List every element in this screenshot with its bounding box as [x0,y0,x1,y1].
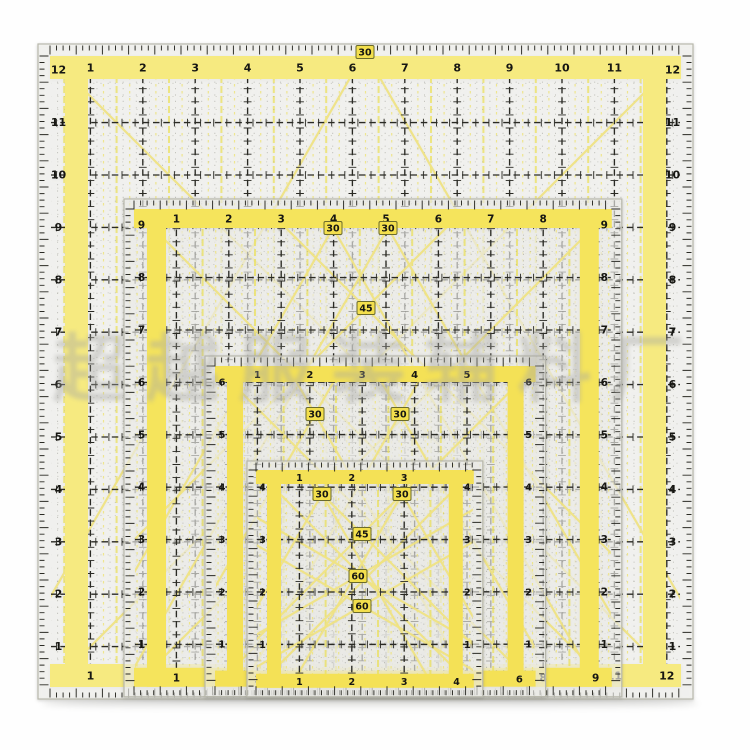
svg-text:4: 4 [55,483,63,496]
svg-text:11: 11 [607,62,622,75]
svg-text:1: 1 [87,62,95,75]
svg-text:6: 6 [219,378,226,389]
svg-text:3: 3 [138,534,145,546]
svg-text:3: 3 [55,535,63,548]
svg-text:1: 1 [464,640,471,651]
svg-text:3: 3 [259,535,266,546]
svg-text:7: 7 [138,325,145,337]
svg-text:30: 30 [395,490,409,501]
svg-text:4: 4 [219,483,226,494]
svg-text:45: 45 [355,530,368,541]
svg-text:45: 45 [359,304,372,315]
svg-text:4: 4 [453,677,460,688]
svg-text:4: 4 [669,483,677,496]
svg-text:8: 8 [540,214,547,226]
svg-text:30: 30 [393,410,407,421]
svg-text:7: 7 [601,325,608,337]
svg-text:3: 3 [525,535,532,546]
svg-text:4: 4 [244,62,252,75]
svg-text:1: 1 [254,370,261,381]
svg-text:8: 8 [669,273,677,286]
svg-text:2: 2 [225,214,232,226]
svg-text:1: 1 [525,640,532,651]
svg-text:9: 9 [592,672,599,684]
svg-text:6: 6 [435,214,442,226]
svg-text:3: 3 [278,214,285,226]
svg-text:12: 12 [659,670,674,683]
svg-text:2: 2 [259,588,266,599]
svg-text:5: 5 [219,430,226,441]
svg-text:5: 5 [55,431,63,444]
svg-text:5: 5 [525,430,532,441]
svg-text:30: 30 [358,48,372,59]
svg-text:10: 10 [554,62,570,75]
svg-text:7: 7 [55,326,63,339]
svg-text:30: 30 [315,490,329,501]
svg-text:4: 4 [138,482,145,494]
svg-text:12: 12 [665,64,680,77]
svg-text:6: 6 [516,675,523,686]
svg-text:1: 1 [601,639,608,651]
svg-text:11: 11 [665,116,680,129]
svg-text:3: 3 [219,535,226,546]
svg-text:2: 2 [464,588,471,599]
svg-text:1: 1 [138,639,145,651]
svg-text:4: 4 [259,483,266,494]
svg-text:9: 9 [55,221,63,234]
svg-text:3: 3 [601,534,608,546]
svg-text:2: 2 [348,473,355,484]
svg-text:3: 3 [401,473,408,484]
svg-text:8: 8 [138,272,145,284]
svg-text:10: 10 [51,169,67,182]
svg-text:3: 3 [191,62,199,75]
svg-text:2: 2 [138,587,145,599]
svg-text:9: 9 [601,220,608,232]
svg-text:1: 1 [55,640,63,653]
svg-text:30: 30 [381,224,395,235]
svg-text:1: 1 [296,677,303,688]
svg-text:11: 11 [51,116,66,129]
svg-text:7: 7 [487,214,494,226]
svg-text:3: 3 [464,535,471,546]
svg-text:10: 10 [665,169,681,182]
svg-text:6: 6 [669,378,677,391]
svg-text:2: 2 [348,677,355,688]
svg-text:4: 4 [601,482,608,494]
svg-text:60: 60 [351,572,365,583]
svg-text:3: 3 [669,535,677,548]
svg-text:9: 9 [138,220,145,232]
svg-text:5: 5 [138,429,145,441]
svg-text:2: 2 [601,587,608,599]
svg-text:6: 6 [525,378,532,389]
svg-text:7: 7 [669,326,677,339]
svg-text:2: 2 [219,587,226,598]
svg-text:2: 2 [525,587,532,598]
svg-text:5: 5 [296,62,304,75]
svg-text:9: 9 [506,62,514,75]
svg-text:1: 1 [259,640,266,651]
svg-text:8: 8 [55,273,63,286]
svg-text:1: 1 [173,214,180,226]
svg-text:2: 2 [306,370,313,381]
svg-text:7: 7 [401,62,409,75]
svg-text:2: 2 [55,588,63,601]
svg-text:5: 5 [669,431,677,444]
product-photo: 1234567891011123456789101112121211111010… [0,0,750,750]
svg-text:6: 6 [138,377,145,389]
svg-text:6: 6 [601,377,608,389]
rulers-image: 1234567891011123456789101112121211111010… [0,0,750,750]
svg-text:5: 5 [601,429,608,441]
svg-text:60: 60 [355,602,369,613]
svg-text:6: 6 [349,62,357,75]
svg-text:5: 5 [464,370,471,381]
svg-text:8: 8 [453,62,461,75]
svg-text:1: 1 [669,640,677,653]
svg-text:4: 4 [525,483,532,494]
svg-text:1: 1 [87,670,95,683]
svg-text:1: 1 [173,672,180,684]
svg-text:4: 4 [464,483,471,494]
svg-text:12: 12 [51,64,66,77]
svg-text:30: 30 [308,410,322,421]
svg-text:1: 1 [219,640,226,651]
svg-text:8: 8 [601,272,608,284]
svg-text:2: 2 [669,588,677,601]
svg-text:30: 30 [326,224,340,235]
svg-text:1: 1 [296,473,303,484]
svg-text:9: 9 [669,221,677,234]
svg-text:6: 6 [55,378,63,391]
svg-text:3: 3 [359,370,366,381]
svg-text:3: 3 [401,677,408,688]
svg-text:2: 2 [139,62,147,75]
svg-text:4: 4 [411,370,418,381]
